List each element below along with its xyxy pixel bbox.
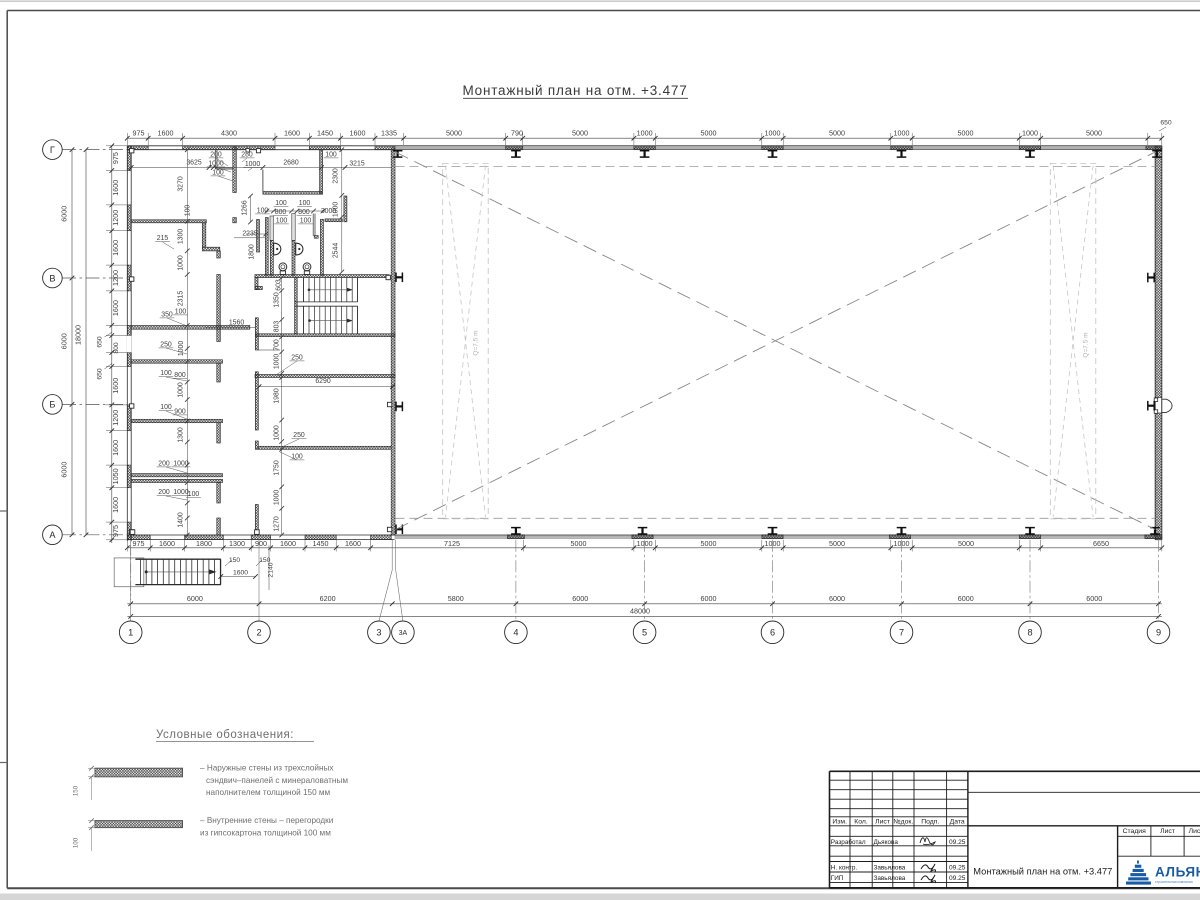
svg-text:280: 280 — [241, 152, 253, 159]
svg-text:800: 800 — [174, 372, 186, 379]
svg-text:5000: 5000 — [572, 129, 588, 138]
svg-text:215: 215 — [157, 235, 169, 242]
svg-text:Лис: Лис — [1189, 828, 1200, 835]
svg-text:5000: 5000 — [958, 539, 974, 548]
svg-text:№док.: №док. — [893, 819, 913, 826]
svg-text:1000: 1000 — [333, 202, 340, 217]
svg-text:1000: 1000 — [178, 255, 185, 270]
svg-text:1000: 1000 — [274, 490, 281, 505]
svg-text:Г: Г — [50, 145, 55, 155]
svg-text:1600: 1600 — [111, 300, 120, 316]
svg-text:100: 100 — [275, 200, 287, 207]
svg-text:Кол.: Кол. — [854, 819, 868, 826]
svg-text:3: 3 — [376, 628, 381, 638]
svg-text:150: 150 — [229, 557, 241, 564]
svg-text:800: 800 — [298, 209, 310, 216]
svg-text:975: 975 — [111, 525, 120, 537]
svg-text:2544: 2544 — [333, 243, 340, 258]
svg-text:2680: 2680 — [283, 160, 298, 167]
svg-text:1000: 1000 — [765, 129, 781, 138]
svg-text:6000: 6000 — [60, 333, 69, 349]
svg-text:1450: 1450 — [317, 129, 333, 138]
svg-text:100: 100 — [300, 218, 312, 225]
svg-text:7125: 7125 — [444, 539, 460, 548]
svg-text:Q=7.5 m: Q=7.5 m — [1083, 332, 1090, 357]
svg-text:150: 150 — [73, 785, 80, 796]
svg-text:6000: 6000 — [1086, 594, 1102, 603]
svg-text:2315: 2315 — [178, 291, 185, 306]
svg-text:6290: 6290 — [315, 378, 330, 385]
svg-text:1800: 1800 — [249, 244, 256, 259]
svg-text:– Наружные стены из трехслойны: – Наружные стены из трехслойных — [200, 764, 334, 773]
svg-text:1000: 1000 — [245, 161, 260, 168]
svg-text:9: 9 — [1156, 628, 1161, 638]
svg-text:1750: 1750 — [274, 460, 281, 475]
svg-text:6000: 6000 — [187, 594, 203, 603]
svg-text:– Внутренние стены – перегород: – Внутренние стены – перегородки — [200, 816, 333, 825]
svg-text:1600: 1600 — [111, 440, 120, 456]
svg-text:3270: 3270 — [178, 176, 185, 191]
svg-text:наполнителем толщиной 150 мм: наполнителем толщиной 150 мм — [206, 788, 331, 797]
svg-text:Дьякова: Дьякова — [874, 839, 899, 846]
svg-text:800: 800 — [113, 342, 120, 354]
svg-text:100: 100 — [185, 205, 192, 217]
svg-text:200: 200 — [158, 489, 170, 496]
svg-text:строительная компания: строительная компания — [1155, 880, 1193, 884]
svg-text:1600: 1600 — [280, 539, 296, 548]
svg-text:800: 800 — [275, 209, 287, 216]
svg-text:Q=7.5 m: Q=7.5 m — [473, 330, 480, 355]
svg-text:6000: 6000 — [701, 594, 717, 603]
svg-text:5800: 5800 — [448, 594, 464, 603]
svg-text:1: 1 — [128, 628, 133, 638]
svg-text:250: 250 — [291, 355, 303, 362]
svg-text:1000: 1000 — [173, 489, 188, 496]
svg-text:1300: 1300 — [178, 427, 185, 442]
svg-text:В: В — [49, 273, 55, 283]
svg-text:Н. контр.: Н. контр. — [831, 864, 858, 871]
svg-text:5000: 5000 — [701, 129, 717, 138]
svg-text:1450: 1450 — [313, 539, 329, 548]
svg-text:650: 650 — [1160, 120, 1172, 127]
svg-text:100: 100 — [160, 370, 172, 377]
svg-text:ГИП: ГИП — [831, 875, 844, 882]
svg-text:6000: 6000 — [958, 594, 974, 603]
svg-text:1800: 1800 — [196, 539, 212, 548]
svg-text:4300: 4300 — [221, 129, 237, 138]
svg-text:200: 200 — [210, 152, 222, 159]
svg-text:650: 650 — [97, 336, 104, 348]
svg-text:3215: 3215 — [349, 161, 364, 168]
svg-text:Лист: Лист — [1160, 828, 1175, 835]
svg-text:200: 200 — [158, 461, 170, 468]
svg-text:100: 100 — [188, 491, 200, 498]
svg-text:Монтажный план на отм. +3.477: Монтажный план на отм. +3.477 — [462, 83, 687, 98]
svg-text:1000: 1000 — [274, 354, 281, 369]
svg-text:6200: 6200 — [320, 594, 336, 603]
svg-text:Монтажный план на отм. +3.477: Монтажный план на отм. +3.477 — [973, 867, 1112, 877]
svg-text:АЛЬЯНС: АЛЬЯНС — [1155, 865, 1200, 880]
svg-text:100: 100 — [291, 454, 303, 461]
svg-text:09.25: 09.25 — [949, 864, 966, 871]
svg-text:975: 975 — [133, 129, 145, 138]
svg-text:1600: 1600 — [345, 539, 361, 548]
svg-text:803: 803 — [274, 321, 281, 333]
svg-text:1200: 1200 — [111, 210, 120, 226]
svg-text:250: 250 — [293, 432, 305, 439]
svg-text:1000: 1000 — [637, 129, 653, 138]
svg-text:5000: 5000 — [571, 539, 587, 548]
svg-text:100: 100 — [175, 309, 187, 316]
svg-text:1600: 1600 — [111, 240, 120, 256]
svg-text:350: 350 — [161, 312, 173, 319]
svg-text:2140: 2140 — [268, 562, 275, 577]
svg-text:2300: 2300 — [333, 168, 340, 183]
svg-text:3625: 3625 — [186, 160, 201, 167]
svg-text:1600: 1600 — [159, 539, 175, 548]
svg-text:1266: 1266 — [242, 200, 249, 215]
svg-text:5000: 5000 — [829, 539, 845, 548]
svg-text:5000: 5000 — [1086, 129, 1102, 138]
svg-text:2: 2 — [256, 628, 261, 638]
svg-text:Подп.: Подп. — [921, 819, 939, 826]
svg-text:А: А — [49, 530, 56, 540]
svg-text:1335: 1335 — [381, 129, 397, 138]
svg-text:250: 250 — [160, 342, 172, 349]
svg-text:1000: 1000 — [894, 129, 910, 138]
svg-text:5000: 5000 — [958, 129, 974, 138]
svg-text:18000: 18000 — [74, 325, 83, 345]
svg-text:1600: 1600 — [350, 129, 366, 138]
svg-text:1600: 1600 — [233, 570, 248, 577]
svg-text:100: 100 — [160, 404, 172, 411]
svg-text:6000: 6000 — [829, 594, 845, 603]
svg-text:6: 6 — [770, 628, 775, 638]
svg-text:5000: 5000 — [446, 129, 462, 138]
svg-text:09.25: 09.25 — [949, 875, 966, 882]
svg-text:1050: 1050 — [111, 468, 120, 484]
svg-text:975: 975 — [133, 539, 145, 548]
svg-text:Б: Б — [49, 400, 55, 410]
svg-text:1600: 1600 — [111, 378, 120, 394]
svg-text:48000: 48000 — [630, 607, 650, 616]
svg-text:1600: 1600 — [284, 129, 300, 138]
svg-text:100: 100 — [212, 170, 224, 177]
svg-text:1560: 1560 — [229, 320, 244, 327]
svg-text:650: 650 — [97, 368, 104, 380]
svg-text:6650: 6650 — [1093, 539, 1109, 548]
svg-text:Разработал: Разработал — [831, 838, 866, 846]
svg-text:6000: 6000 — [60, 206, 69, 222]
svg-text:3А: 3А — [399, 630, 408, 637]
svg-text:100: 100 — [325, 152, 337, 159]
svg-text:1200: 1200 — [111, 410, 120, 426]
svg-text:Стадия: Стадия — [1123, 828, 1146, 835]
svg-text:100: 100 — [276, 218, 288, 225]
svg-text:5000: 5000 — [701, 539, 717, 548]
svg-text:сэндвич–панелей с минераловатн: сэндвич–панелей с минераловатным — [206, 776, 348, 785]
svg-text:Лист: Лист — [875, 819, 890, 826]
svg-text:1600: 1600 — [111, 180, 120, 196]
svg-text:1600: 1600 — [111, 497, 120, 513]
svg-text:Завьялова: Завьялова — [874, 864, 906, 871]
svg-text:Условные обозначения:: Условные обозначения: — [156, 729, 294, 741]
svg-text:1000: 1000 — [1022, 129, 1038, 138]
svg-text:1000: 1000 — [274, 425, 281, 440]
svg-text:1300: 1300 — [229, 539, 245, 548]
svg-text:1300: 1300 — [178, 229, 185, 244]
svg-text:1000: 1000 — [178, 382, 185, 397]
svg-text:Завьялова: Завьялова — [874, 875, 906, 882]
svg-text:1980: 1980 — [274, 388, 281, 403]
svg-text:09.25: 09.25 — [949, 839, 966, 846]
svg-text:6000: 6000 — [572, 594, 588, 603]
svg-text:8: 8 — [1027, 628, 1032, 638]
svg-text:1400: 1400 — [178, 512, 185, 527]
svg-text:7: 7 — [899, 628, 904, 638]
svg-text:100: 100 — [299, 200, 311, 207]
svg-text:1600: 1600 — [158, 129, 174, 138]
svg-text:4: 4 — [513, 628, 518, 638]
svg-text:975: 975 — [111, 152, 120, 164]
svg-text:6000: 6000 — [60, 462, 69, 478]
svg-text:1000: 1000 — [173, 461, 188, 468]
svg-text:700: 700 — [274, 339, 281, 351]
svg-text:Изм.: Изм. — [832, 819, 847, 826]
svg-text:1270: 1270 — [274, 516, 281, 531]
svg-text:Дата: Дата — [950, 819, 965, 826]
svg-text:900: 900 — [174, 409, 186, 416]
svg-text:790: 790 — [511, 129, 523, 138]
svg-text:900: 900 — [255, 539, 267, 548]
svg-text:100: 100 — [73, 837, 80, 848]
svg-text:1350: 1350 — [274, 292, 281, 307]
svg-text:5000: 5000 — [829, 129, 845, 138]
svg-text:5: 5 — [642, 628, 647, 638]
svg-text:из гипсокартона толщиной 100 м: из гипсокартона толщиной 100 мм — [200, 828, 331, 837]
svg-text:1000: 1000 — [178, 341, 185, 356]
